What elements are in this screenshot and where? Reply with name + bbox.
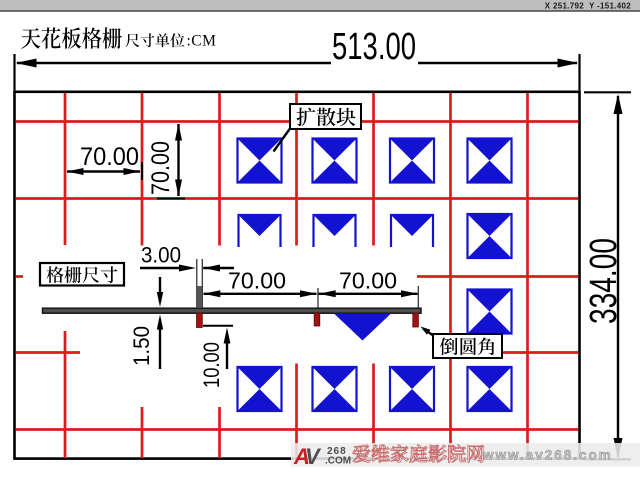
svg-text:www.av268.com: www.av268.com <box>482 448 613 463</box>
svg-text:70.00: 70.00 <box>228 268 286 294</box>
svg-text:10.00: 10.00 <box>199 342 224 388</box>
svg-text:1.50: 1.50 <box>129 326 154 366</box>
svg-text:70.00: 70.00 <box>339 268 397 294</box>
svg-text:V: V <box>305 444 322 469</box>
svg-text:70.00: 70.00 <box>80 143 139 171</box>
svg-text:513.00: 513.00 <box>332 26 416 68</box>
svg-text::CM: :CM <box>187 33 217 50</box>
svg-text:70.00: 70.00 <box>147 141 175 195</box>
svg-text:X 251.792 Y -151.402: X 251.792 Y -151.402 <box>545 2 631 11</box>
svg-text:334.00: 334.00 <box>583 238 625 324</box>
svg-text:.COM: .COM <box>325 456 351 467</box>
svg-text:3.00: 3.00 <box>141 243 181 268</box>
